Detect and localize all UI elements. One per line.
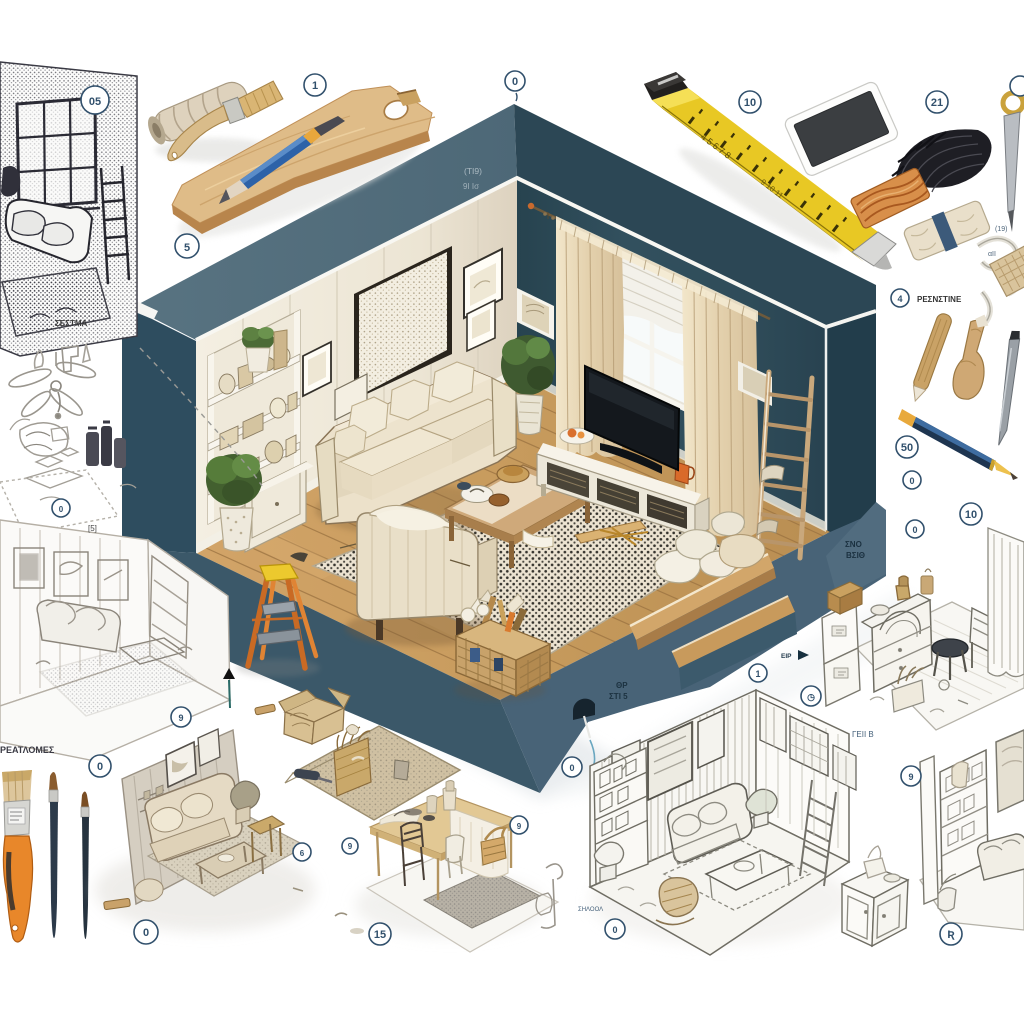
svg-text:5: 5 — [184, 242, 190, 254]
svg-text:9Ι Ισ: 9Ι Ισ — [463, 182, 479, 191]
svg-text:9: 9 — [517, 822, 522, 831]
svg-text:0: 0 — [59, 505, 64, 514]
svg-text:ΕΙΡ: ΕΙΡ — [781, 653, 792, 660]
svg-text:ΣΗΛΟΟΛ: ΣΗΛΟΟΛ — [578, 907, 603, 913]
svg-text:1: 1 — [755, 669, 760, 679]
svg-text:0: 0 — [909, 476, 914, 486]
svg-text:ΡΕΣΝΣΤΙΝΕ: ΡΕΣΝΣΤΙΝΕ — [917, 295, 962, 304]
svg-text:0: 0 — [143, 927, 149, 939]
svg-text:ΒΣΙΘ: ΒΣΙΘ — [846, 551, 865, 560]
svg-text:αΙΙ: αΙΙ — [988, 251, 996, 258]
svg-text:9: 9 — [348, 842, 353, 851]
svg-text:0: 0 — [512, 76, 518, 88]
svg-text:(ΤΙ9): (ΤΙ9) — [464, 166, 482, 176]
svg-text:ΣΝΟ: ΣΝΟ — [845, 540, 862, 549]
svg-text:1: 1 — [312, 80, 318, 92]
svg-text:(19): (19) — [995, 226, 1007, 233]
svg-text:10: 10 — [744, 97, 756, 109]
svg-text:0: 0 — [569, 763, 574, 773]
svg-text:21: 21 — [931, 97, 943, 109]
svg-text:10: 10 — [965, 509, 977, 521]
svg-text:9: 9 — [178, 713, 183, 723]
svg-text:ΣΕΣΤΜΑ: ΣΕΣΤΜΑ — [55, 319, 87, 328]
svg-text:ΓΕΙΙ Β: ΓΕΙΙ Β — [852, 730, 874, 739]
svg-text:15: 15 — [374, 929, 386, 941]
svg-text:◷: ◷ — [807, 692, 815, 702]
svg-text:0: 0 — [97, 761, 103, 773]
svg-text:Ʀ: Ʀ — [947, 929, 955, 941]
svg-text:ΣΤΙ 5: ΣΤΙ 5 — [609, 692, 628, 701]
svg-text:9: 9 — [908, 772, 913, 782]
svg-text:05: 05 — [89, 96, 101, 108]
svg-text:50: 50 — [901, 442, 913, 454]
svg-text:6: 6 — [300, 849, 305, 858]
svg-text:ΘΡ: ΘΡ — [616, 681, 628, 690]
svg-text:ΡΕΑΤΛΟΜΕΣ: ΡΕΑΤΛΟΜΕΣ — [0, 745, 55, 755]
svg-text:0: 0 — [612, 925, 617, 935]
svg-text:[5]: [5] — [88, 524, 97, 533]
svg-text:0: 0 — [912, 525, 917, 535]
svg-text:4: 4 — [897, 294, 902, 304]
